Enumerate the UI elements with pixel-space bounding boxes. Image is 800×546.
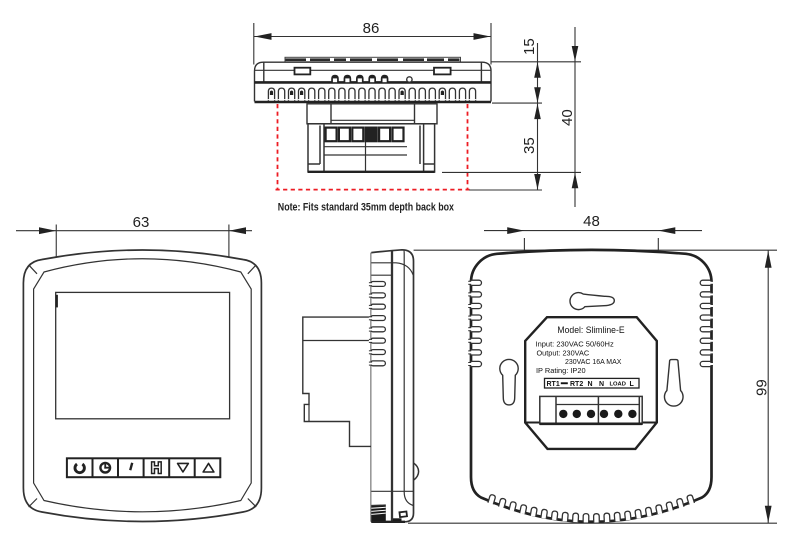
svg-text:RT1: RT1 bbox=[547, 381, 560, 388]
svg-text:Output: 230VAC: Output: 230VAC bbox=[537, 348, 590, 357]
svg-text:N: N bbox=[588, 381, 593, 388]
svg-text:Model: Slimline-E: Model: Slimline-E bbox=[557, 325, 624, 336]
svg-text:35: 35 bbox=[521, 137, 538, 154]
svg-text:Input: 230VAC 50/60Hz: Input: 230VAC 50/60Hz bbox=[536, 340, 614, 349]
svg-text:40: 40 bbox=[559, 109, 576, 126]
svg-text:LOAD: LOAD bbox=[610, 382, 626, 388]
svg-text:IP Rating: IP20: IP Rating: IP20 bbox=[536, 366, 586, 375]
svg-text:230VAC 16A MAX: 230VAC 16A MAX bbox=[565, 357, 621, 366]
svg-text:48: 48 bbox=[583, 213, 600, 230]
svg-text:N: N bbox=[599, 381, 604, 388]
svg-text:L: L bbox=[630, 381, 635, 388]
svg-text:86: 86 bbox=[363, 20, 380, 37]
svg-text:RT2: RT2 bbox=[570, 381, 583, 388]
svg-text:63: 63 bbox=[133, 214, 150, 231]
svg-text:15: 15 bbox=[521, 38, 538, 55]
svg-text:99: 99 bbox=[754, 379, 771, 396]
svg-text:Note: Fits standard 35mm depth: Note: Fits standard 35mm depth back box bbox=[278, 202, 455, 214]
